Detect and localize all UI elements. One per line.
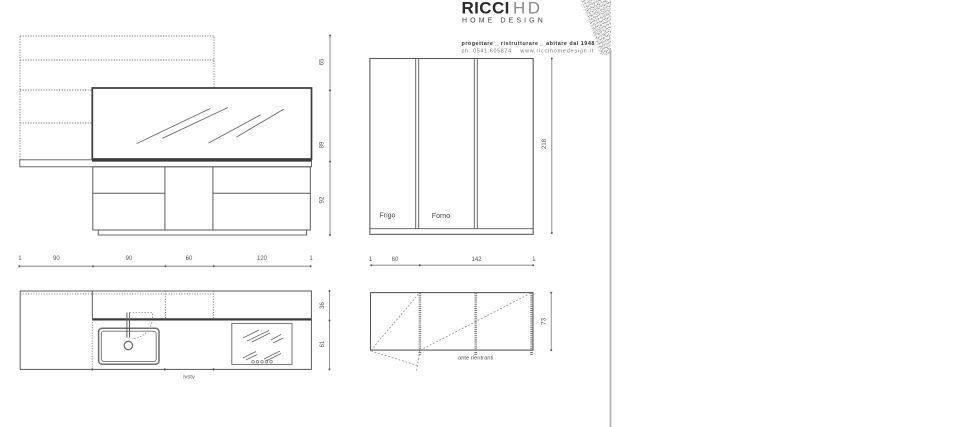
- svg-text:Forno: Forno: [432, 213, 450, 220]
- svg-text:1: 1: [369, 257, 373, 263]
- svg-text:lvstv: lvstv: [183, 375, 195, 381]
- svg-text:218: 218: [542, 138, 548, 149]
- svg-text:36: 36: [320, 302, 326, 309]
- svg-text:142: 142: [471, 257, 482, 263]
- svg-text:92: 92: [320, 196, 326, 203]
- svg-text:ph. 0541.605874: ph. 0541.605874: [462, 48, 512, 54]
- svg-text:1: 1: [18, 256, 22, 262]
- svg-text:90: 90: [53, 256, 60, 262]
- svg-text:90: 90: [126, 256, 133, 262]
- svg-text:Frigo: Frigo: [380, 212, 396, 219]
- svg-text:89: 89: [320, 141, 326, 148]
- svg-text:HD: HD: [513, 0, 543, 18]
- svg-text:120: 120: [257, 256, 268, 262]
- svg-text:progettare _ ristrutturare _ a: progettare _ ristrutturare _ abitare dal…: [462, 41, 595, 47]
- svg-text:65: 65: [320, 58, 326, 65]
- svg-text:60: 60: [392, 257, 399, 263]
- svg-text:HOME DESIGN: HOME DESIGN: [462, 18, 546, 25]
- svg-text:60: 60: [186, 256, 193, 262]
- svg-text:ante rientranti: ante rientranti: [458, 356, 493, 362]
- svg-text:1: 1: [532, 257, 536, 263]
- svg-text:www.riccihomedesign.it: www.riccihomedesign.it: [519, 48, 594, 54]
- svg-text:61: 61: [320, 340, 326, 347]
- svg-text:1: 1: [309, 256, 313, 262]
- svg-text:RICCI: RICCI: [462, 0, 510, 18]
- svg-text:73: 73: [542, 317, 548, 324]
